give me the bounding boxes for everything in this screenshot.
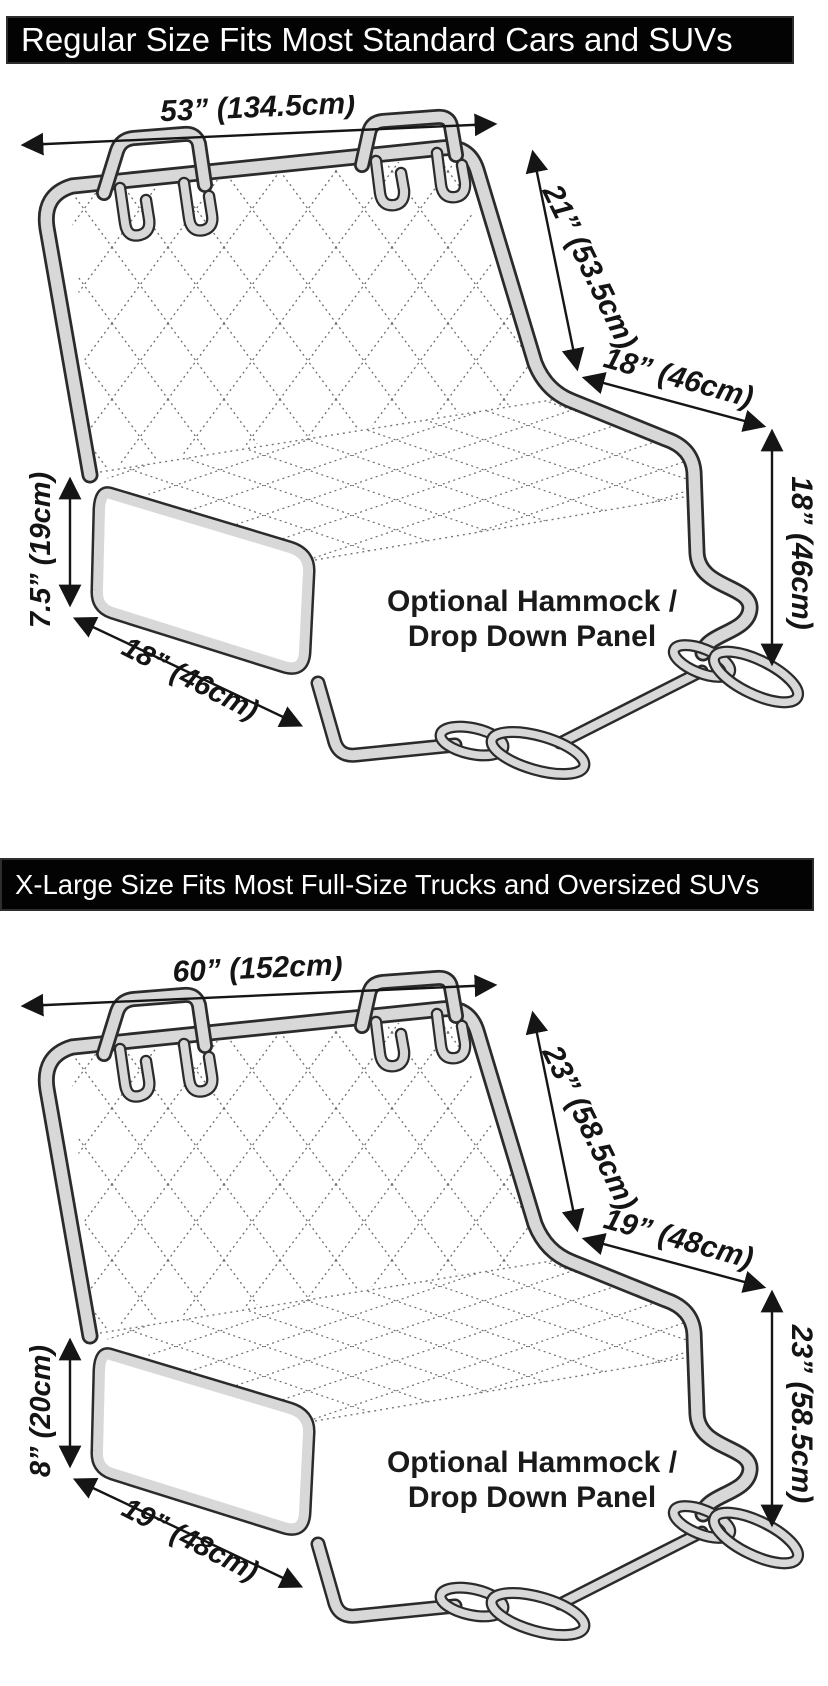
drop-height-dimension: 23” (58.5cm) (772, 1293, 818, 1524)
top-width-label: 53” (134.5cm) (159, 95, 355, 128)
hammock-note-line2: Drop Down Panel (408, 620, 656, 653)
quilted-cover-surface (70, 157, 696, 560)
hammock-note: Optional Hammock / Drop Down Panel (387, 1446, 678, 1514)
seat-cover-diagram: 53” (134.5cm) 21” (53.5cm) 18” (46cm) 18… (0, 95, 828, 825)
back-height-dimension: 21” (53.5cm) (533, 153, 643, 368)
hammock-note-line2: Drop Down Panel (408, 1481, 656, 1514)
drop-height-label: 23” (58.5cm) (785, 1324, 818, 1503)
section-header-text: Regular Size Fits Most Standard Cars and… (21, 21, 733, 59)
back-height-label: 21” (53.5cm) (535, 179, 643, 355)
quilted-cover-surface (70, 1018, 696, 1421)
hammock-note-line1: Optional Hammock / (387, 585, 678, 618)
drop-height-label: 18” (46cm) (785, 476, 818, 629)
back-height-label: 23” (58.5cm) (535, 1040, 643, 1216)
flap-height-dimension: 8” (20cm) (25, 1341, 70, 1477)
top-width-label: 60” (152cm) (172, 956, 343, 989)
section-header-text: X-Large Size Fits Most Full-Size Trucks … (15, 869, 759, 901)
flap-height-dimension: 7.5” (19cm) (25, 472, 70, 628)
bottom-skirt-and-straps (318, 671, 702, 755)
seat-cover-diagram: 60” (152cm) 23” (58.5cm) 19” (48cm) 23” … (0, 956, 828, 1686)
flap-height-label: 8” (20cm) (25, 1345, 57, 1477)
xlarge-size-diagram-area: 60” (152cm) 23” (58.5cm) 19” (48cm) 23” … (0, 956, 828, 1686)
drop-height-dimension: 18” (46cm) (772, 432, 818, 663)
regular-size-diagram-area: 53” (134.5cm) 21” (53.5cm) 18” (46cm) 18… (0, 95, 828, 825)
section-header-xlarge: X-Large Size Fits Most Full-Size Trucks … (0, 858, 814, 911)
hammock-note: Optional Hammock / Drop Down Panel (387, 585, 678, 653)
back-height-dimension: 23” (58.5cm) (533, 1014, 643, 1229)
product-size-infographic: Regular Size Fits Most Standard Cars and… (0, 0, 828, 1686)
flap-height-label: 7.5” (19cm) (25, 472, 57, 628)
hammock-note-line1: Optional Hammock / (387, 1446, 678, 1479)
bottom-skirt-and-straps (318, 1532, 702, 1616)
section-header-regular: Regular Size Fits Most Standard Cars and… (6, 16, 794, 64)
